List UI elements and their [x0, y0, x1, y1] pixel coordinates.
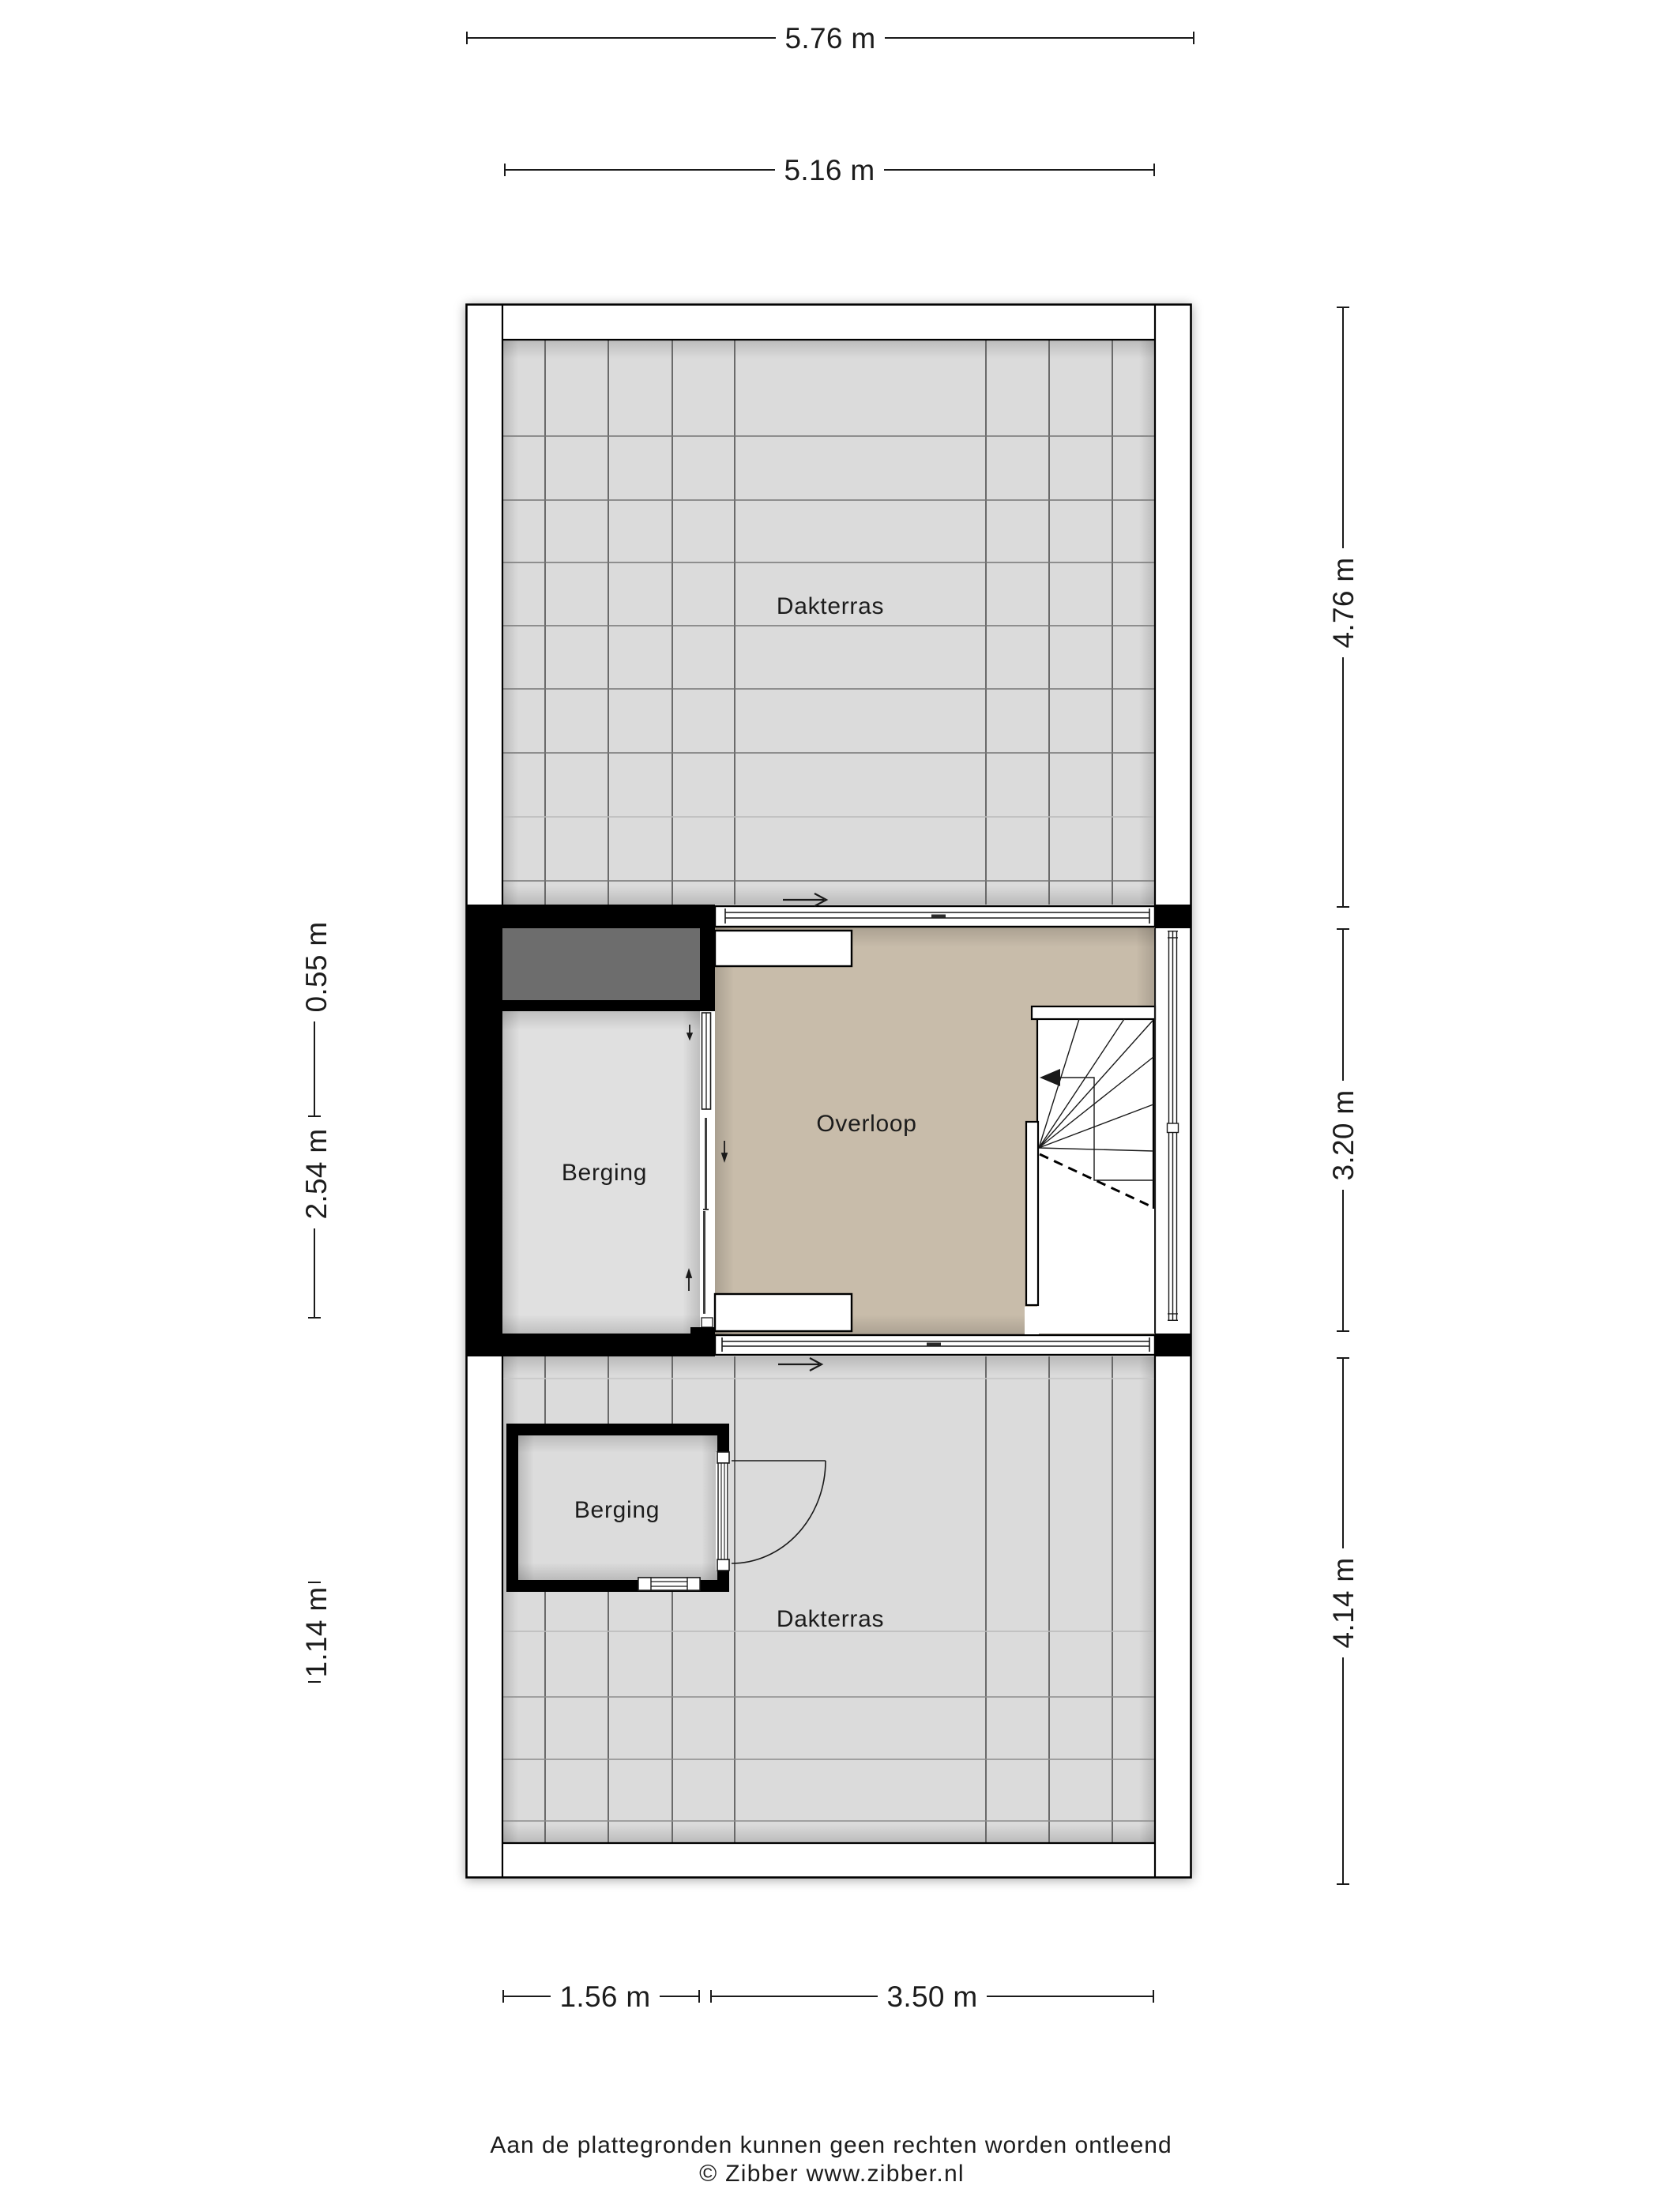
svg-text:Overloop: Overloop — [816, 1111, 916, 1137]
svg-text:Berging: Berging — [562, 1160, 647, 1186]
svg-text:3.20 m: 3.20 m — [1327, 1090, 1360, 1181]
svg-text:4.14 m: 4.14 m — [1327, 1558, 1360, 1649]
svg-text:Aan de plattegronden kunnen ge: Aan de plattegronden kunnen geen rechten… — [490, 2132, 1172, 2158]
svg-text:4.76 m: 4.76 m — [1327, 558, 1360, 649]
svg-text:0.55 m: 0.55 m — [300, 922, 333, 1013]
svg-text:Berging: Berging — [574, 1497, 660, 1523]
svg-text:2.54 m: 2.54 m — [300, 1129, 333, 1220]
svg-text:5.76 m: 5.76 m — [785, 22, 876, 55]
svg-text:3.50 m: 3.50 m — [887, 1981, 978, 2013]
svg-text:1.56 m: 1.56 m — [560, 1981, 651, 2013]
svg-text:5.16 m: 5.16 m — [784, 154, 875, 186]
svg-text:1.14 m: 1.14 m — [300, 1587, 333, 1678]
svg-text:© Zibber www.zibber.nl: © Zibber www.zibber.nl — [699, 2161, 965, 2187]
svg-text:Dakterras: Dakterras — [777, 1606, 884, 1632]
svg-text:Dakterras: Dakterras — [777, 593, 884, 619]
